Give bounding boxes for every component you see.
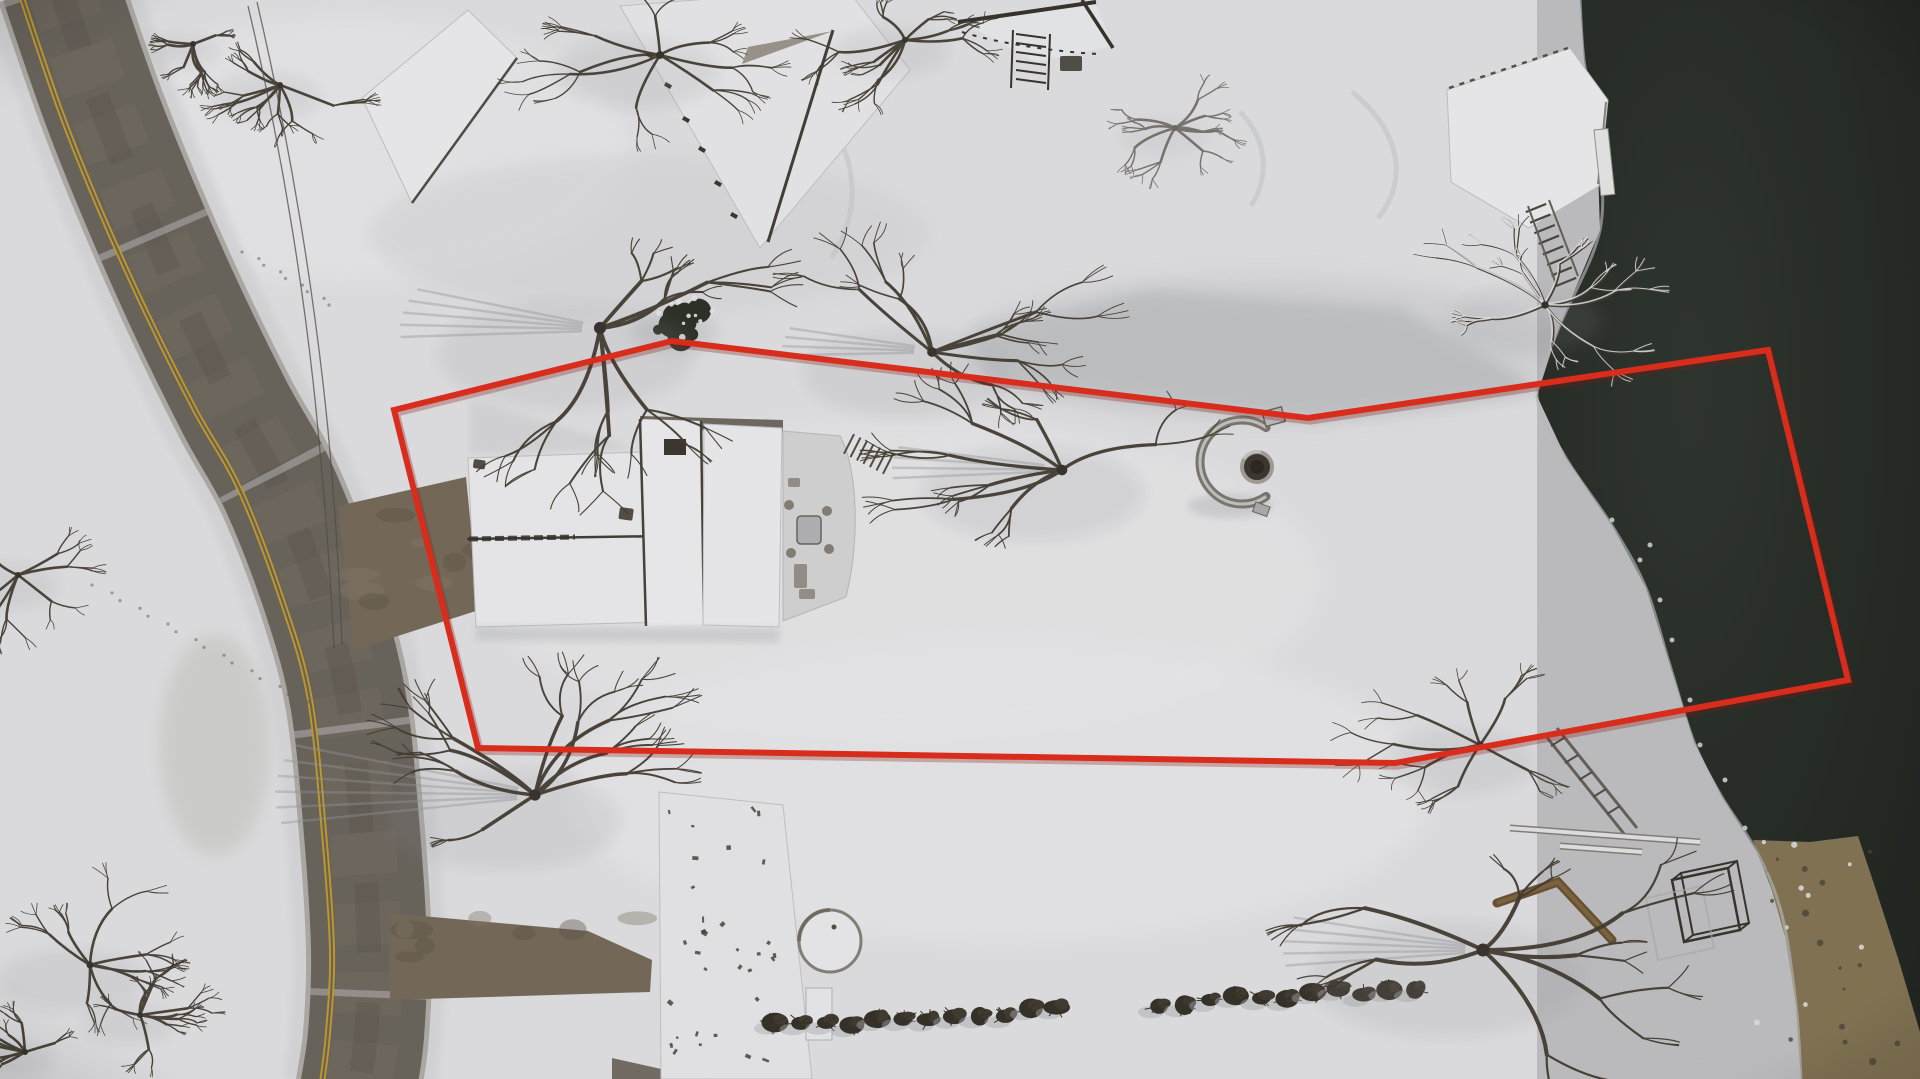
aerial-photo-canvas — [0, 0, 1920, 1079]
vignette — [0, 0, 1920, 1079]
aerial-photograph — [0, 0, 1920, 1079]
overlays — [0, 0, 1920, 1079]
